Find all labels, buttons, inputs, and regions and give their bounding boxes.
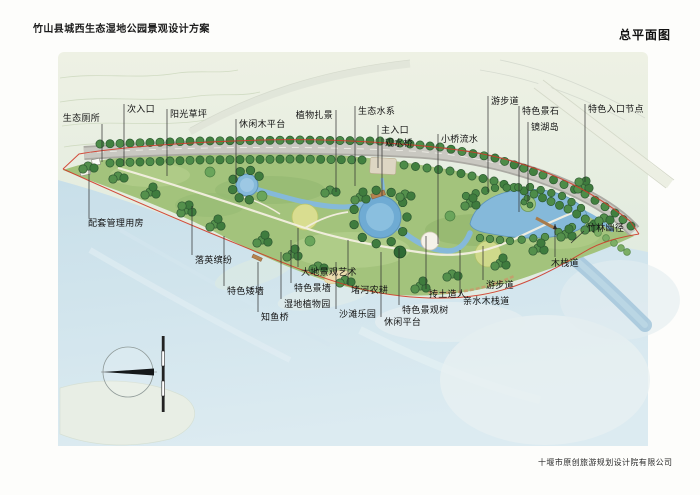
tree	[246, 166, 255, 175]
tree	[214, 215, 222, 223]
tree	[461, 202, 469, 210]
tree	[445, 211, 455, 221]
tree	[581, 215, 589, 223]
tree	[529, 247, 537, 255]
tree	[205, 167, 215, 177]
tree	[443, 273, 451, 281]
tree	[246, 155, 254, 163]
tree	[400, 161, 408, 169]
tree	[515, 184, 523, 192]
tree	[558, 192, 566, 200]
tree	[446, 167, 454, 175]
tree	[116, 159, 124, 167]
tree	[506, 237, 514, 245]
scale-bar	[162, 336, 165, 412]
tree	[156, 157, 164, 165]
plaza-circle	[421, 232, 439, 250]
tree	[394, 246, 406, 258]
tree	[257, 191, 267, 201]
tree	[149, 183, 157, 191]
tree	[337, 156, 345, 164]
tree	[518, 236, 526, 244]
tree	[206, 156, 214, 164]
tree	[568, 198, 576, 206]
tree	[320, 264, 328, 272]
tree	[236, 156, 244, 164]
drawing-sheet: 竹山县城西生态湿地公园景观设计方案 总平面图 十堰市原创旅游规划设计院有限公司	[0, 0, 700, 495]
tree	[176, 138, 184, 146]
tree	[305, 236, 315, 246]
tree	[109, 175, 117, 183]
tree	[90, 164, 98, 172]
tree	[396, 193, 404, 201]
tree	[146, 158, 154, 166]
tree	[235, 194, 244, 203]
tree	[359, 188, 367, 196]
tree	[396, 139, 404, 147]
tree	[537, 239, 545, 247]
tree	[245, 196, 254, 205]
tree	[611, 240, 618, 247]
tree	[555, 201, 563, 209]
tree	[255, 172, 264, 181]
tree	[216, 156, 224, 164]
tree	[321, 189, 329, 197]
tree	[366, 137, 374, 145]
tree	[358, 156, 366, 164]
tree	[434, 165, 442, 173]
main-entrance-plaza	[370, 157, 397, 174]
tree	[253, 239, 261, 247]
tree	[387, 237, 396, 246]
tree	[376, 137, 384, 145]
tree	[619, 215, 627, 223]
tree	[228, 185, 237, 194]
tree	[595, 217, 603, 225]
tree	[565, 225, 573, 233]
tree	[136, 139, 144, 147]
tree	[276, 155, 284, 163]
tree	[564, 205, 572, 213]
tree	[423, 164, 431, 172]
tree	[386, 138, 394, 146]
tree	[141, 191, 149, 199]
tree	[606, 216, 614, 224]
tree	[403, 213, 412, 222]
tree	[469, 150, 477, 158]
tree	[327, 155, 335, 163]
tree	[276, 136, 284, 144]
tree	[575, 178, 583, 186]
tree	[530, 235, 538, 243]
tree	[372, 239, 381, 248]
tree	[186, 137, 194, 145]
tree	[348, 156, 356, 164]
tree	[372, 186, 381, 195]
tree	[499, 254, 507, 262]
tree	[266, 155, 274, 163]
tree	[537, 186, 545, 194]
tree	[538, 194, 546, 202]
tree	[116, 139, 124, 147]
site-plan-canvas	[0, 0, 700, 495]
tree	[411, 285, 419, 293]
tree	[407, 192, 415, 200]
tree	[206, 223, 214, 231]
tree	[457, 169, 465, 177]
tree	[479, 174, 487, 182]
tree	[120, 174, 128, 182]
tree	[286, 155, 294, 163]
tree	[96, 140, 104, 148]
tree	[577, 204, 585, 212]
tree	[601, 203, 609, 211]
tree	[106, 140, 114, 148]
tree	[186, 156, 194, 164]
tree	[206, 137, 214, 145]
tree	[236, 167, 245, 176]
tree	[126, 139, 134, 147]
tree	[548, 189, 556, 197]
tree	[296, 155, 304, 163]
tree	[406, 140, 414, 148]
tree	[350, 205, 359, 214]
tree	[527, 202, 533, 208]
tree	[261, 231, 269, 239]
tree	[351, 196, 359, 204]
tree	[306, 155, 314, 163]
tree	[411, 162, 419, 170]
tree	[196, 137, 204, 145]
tree	[309, 265, 317, 273]
tree	[196, 156, 204, 164]
tree	[398, 227, 407, 236]
tree	[216, 137, 224, 145]
tree	[486, 235, 494, 243]
tree	[178, 202, 186, 210]
site-plan: 生态厕所次入口阳光草坪休闲木平台植物扎景生态水系主入口观水桥小桥流水游步道特色景…	[0, 0, 700, 495]
tree	[256, 155, 264, 163]
tree	[350, 220, 359, 229]
tree	[106, 159, 114, 167]
tree	[496, 236, 504, 244]
tree	[469, 194, 477, 202]
tree	[468, 172, 476, 180]
tree	[79, 165, 87, 173]
tree	[476, 234, 484, 242]
tree	[624, 249, 631, 256]
tree	[136, 158, 144, 166]
tree	[524, 195, 530, 201]
tree	[480, 152, 488, 160]
tree	[490, 177, 498, 185]
tree	[557, 233, 565, 241]
tree	[503, 184, 511, 192]
tree	[595, 230, 602, 237]
tree	[591, 196, 599, 204]
tree	[283, 253, 291, 261]
tree	[618, 245, 625, 252]
tree	[526, 183, 534, 191]
tree	[176, 157, 184, 165]
tree	[454, 272, 462, 280]
tree	[126, 158, 134, 166]
tree	[491, 154, 499, 162]
tree	[491, 184, 499, 192]
tree	[547, 197, 555, 205]
tree	[387, 188, 396, 197]
tree	[603, 235, 610, 242]
tree	[317, 155, 325, 163]
tree	[226, 156, 234, 164]
tree	[491, 262, 499, 270]
tree	[358, 233, 367, 242]
